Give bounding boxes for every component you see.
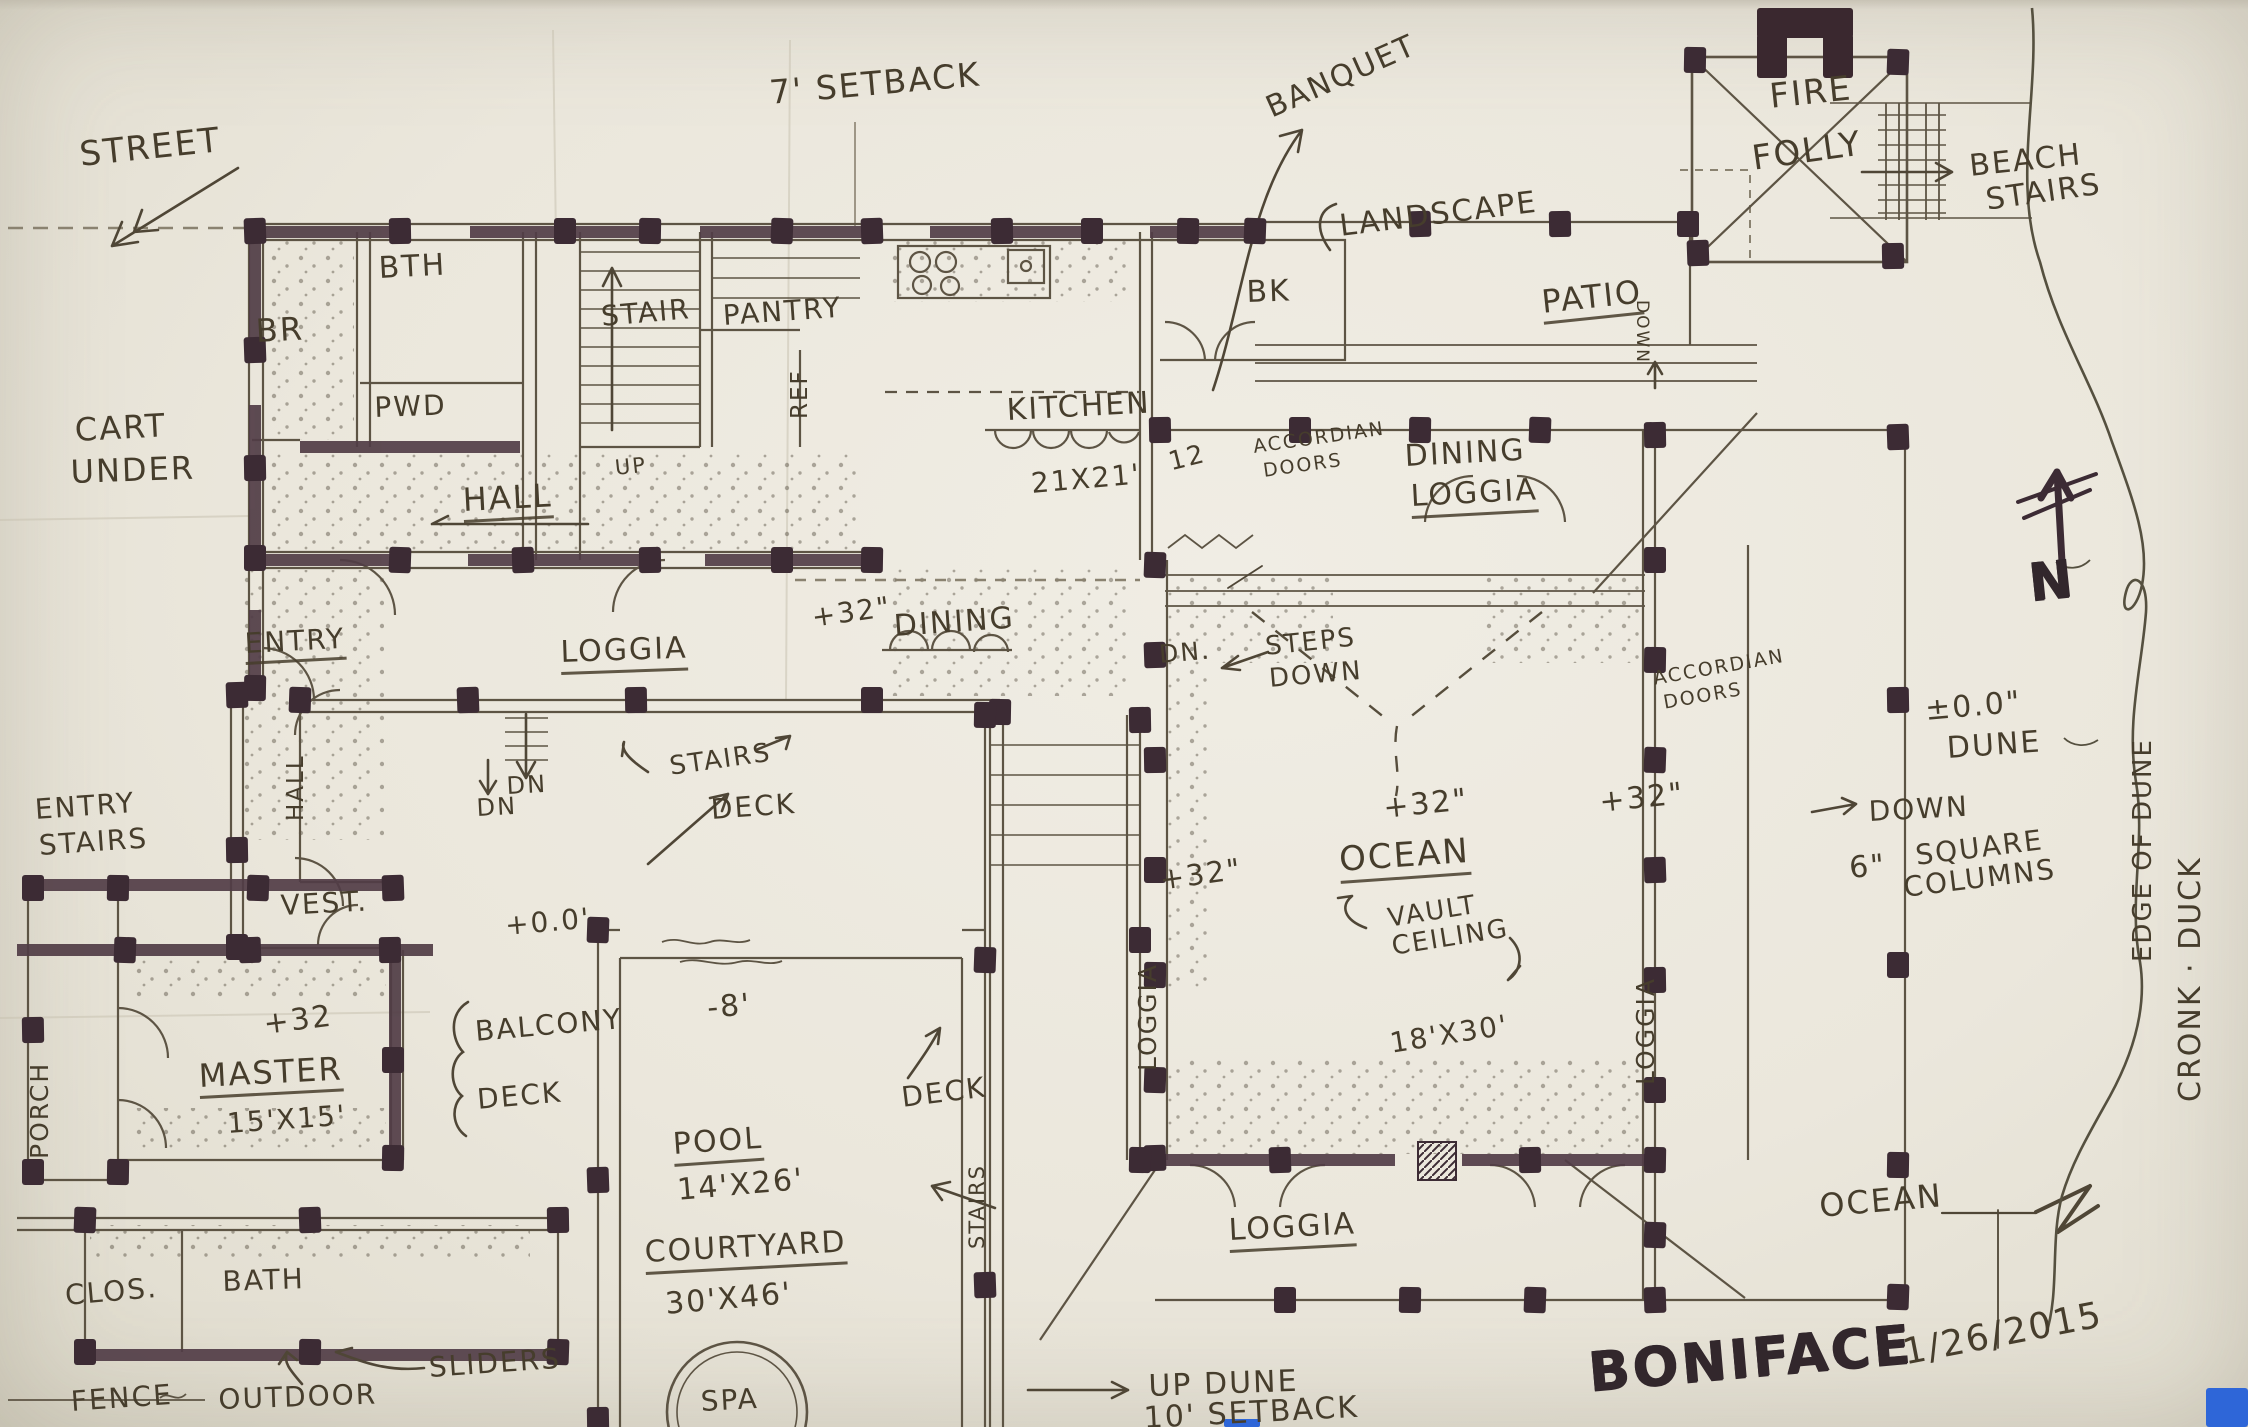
courtyard-label: COURTYARD — [644, 1227, 848, 1275]
boniface-label: BONIFACE — [1586, 1318, 1915, 1400]
fence-label: FENCE — [70, 1381, 174, 1416]
pantry-label: PANTRY — [722, 294, 843, 330]
bk-label: BK — [1246, 276, 1291, 308]
kitchen-size-label: 21X21' — [1030, 460, 1142, 497]
pool-label: POOL — [672, 1124, 764, 1167]
porch-vert-label: PORCH — [27, 1062, 52, 1159]
kitchen-note-label: 12 — [1166, 441, 1208, 475]
sliders-label: SLIDERS — [428, 1345, 562, 1382]
pool-size-label: 14'X26' — [676, 1165, 806, 1206]
dining-loggia-1-label: DINING — [1404, 436, 1526, 472]
dining-label: DINING — [893, 604, 1016, 642]
cronk-duck-vert-label: CRONK · DUCK — [2176, 856, 2206, 1102]
banquet-label: BANQUET — [1262, 31, 1421, 124]
clos-label: CLOS. — [64, 1274, 159, 1310]
accordian-w-2-label: DOORS — [1262, 451, 1344, 481]
plus32-center-label: +32" — [1382, 785, 1470, 824]
hall-label: HALL — [462, 479, 554, 523]
loggia-west-label: LOGGIA — [560, 634, 688, 675]
ocean-room-label: OCEAN — [1338, 834, 1471, 884]
dining-loggia-2-label: LOGGIA — [1410, 475, 1539, 519]
minus-8-label: -8' — [706, 990, 753, 1024]
stair-label: STAIR — [600, 295, 692, 331]
annotation-layer: STREET7' SETBACKBANQUETFIREFOLLYBEACHSTA… — [0, 0, 2248, 1427]
up-hall-label: UP — [614, 455, 648, 479]
steps-2-label: DOWN — [1268, 658, 1364, 692]
cart-2-label: UNDER — [70, 452, 195, 488]
entry-stairs-2-label: STAIRS — [38, 824, 149, 860]
dn-vest-label: DN — [476, 794, 518, 820]
entry-label: ENTRY — [244, 625, 346, 665]
deck-pool-e-label: DECK — [900, 1074, 988, 1112]
courtyard-size-label: 30'X46' — [664, 1279, 794, 1320]
outdoor-label: OUTDOOR — [218, 1380, 378, 1414]
master-label: MASTER — [198, 1052, 344, 1098]
floor-plan-sketch: STREET7' SETBACKBANQUETFIREFOLLYBEACHSTA… — [0, 0, 2248, 1427]
street-label: STREET — [78, 123, 222, 172]
fire-label: FIRE — [1768, 71, 1854, 113]
deck-mid-label: DECK — [710, 790, 797, 824]
spa-label: SPA — [700, 1385, 759, 1416]
entry-stairs-1-label: ENTRY — [34, 789, 136, 824]
edge-of-dune-vert-label: EDGE OF DUNE — [2130, 738, 2156, 962]
dune-label: DUNE — [1946, 727, 2042, 764]
plus32-east-label: +32" — [1598, 779, 1686, 818]
kitchen-label: KITCHEN — [1006, 388, 1151, 425]
dune-elev-label: ±0.0" — [1924, 688, 2023, 726]
loggia-w-vert-label: LOGGIA — [1135, 963, 1160, 1071]
folly-label: FOLLY — [1750, 127, 1864, 176]
br-label: BR — [255, 312, 305, 346]
vest-label: VEST. — [280, 887, 369, 920]
plus32-deck-label: +32" — [810, 593, 893, 632]
loggia-e-vert-label: LOGGIA — [1633, 977, 1658, 1085]
patio-down-label: DOWN — [1633, 300, 1650, 364]
cart-1-label: CART — [74, 409, 167, 446]
master-size-label: 15'X15' — [226, 1102, 348, 1138]
plus32-master-label: +32 — [262, 1002, 334, 1040]
bth-label: BTH — [378, 250, 447, 283]
landscape-label: LANDSCAPE — [1338, 188, 1539, 242]
setback-7-label: 7' SETBACK — [768, 58, 982, 109]
loggia-south-label: LOGGIA — [1228, 1209, 1357, 1253]
hall-vert-label: HALL — [285, 754, 308, 821]
ocean-sea-label: OCEAN — [1818, 1179, 1944, 1222]
patio-label: PATIO — [1540, 275, 1644, 324]
size-18x30-label: 18'X30' — [1388, 1011, 1511, 1057]
balcony-label: BALCONY — [474, 1005, 623, 1046]
stairs-mid-label: STAIRS — [668, 740, 773, 780]
six-inch-label: 6" — [1848, 851, 1887, 884]
plus00-deck-label: +0.0' — [504, 905, 592, 940]
steps-1-label: STEPS — [1264, 624, 1357, 659]
deck-balcony-label: DECK — [476, 1079, 563, 1114]
north-letter-label: N — [2026, 553, 2078, 610]
plus32-west-label: +32" — [1158, 855, 1244, 895]
bath-label: BATH — [222, 1265, 305, 1296]
pwd-label: PWD — [374, 391, 447, 422]
down-east-label: DOWN — [1868, 793, 1970, 826]
stairs-e-vert-label: STAIRS — [967, 1164, 988, 1249]
dn-steps-label: DN. — [1158, 637, 1212, 666]
ref-label: REF — [789, 369, 812, 419]
sheet-date-label: 1/26/2015 — [1900, 1297, 2106, 1371]
